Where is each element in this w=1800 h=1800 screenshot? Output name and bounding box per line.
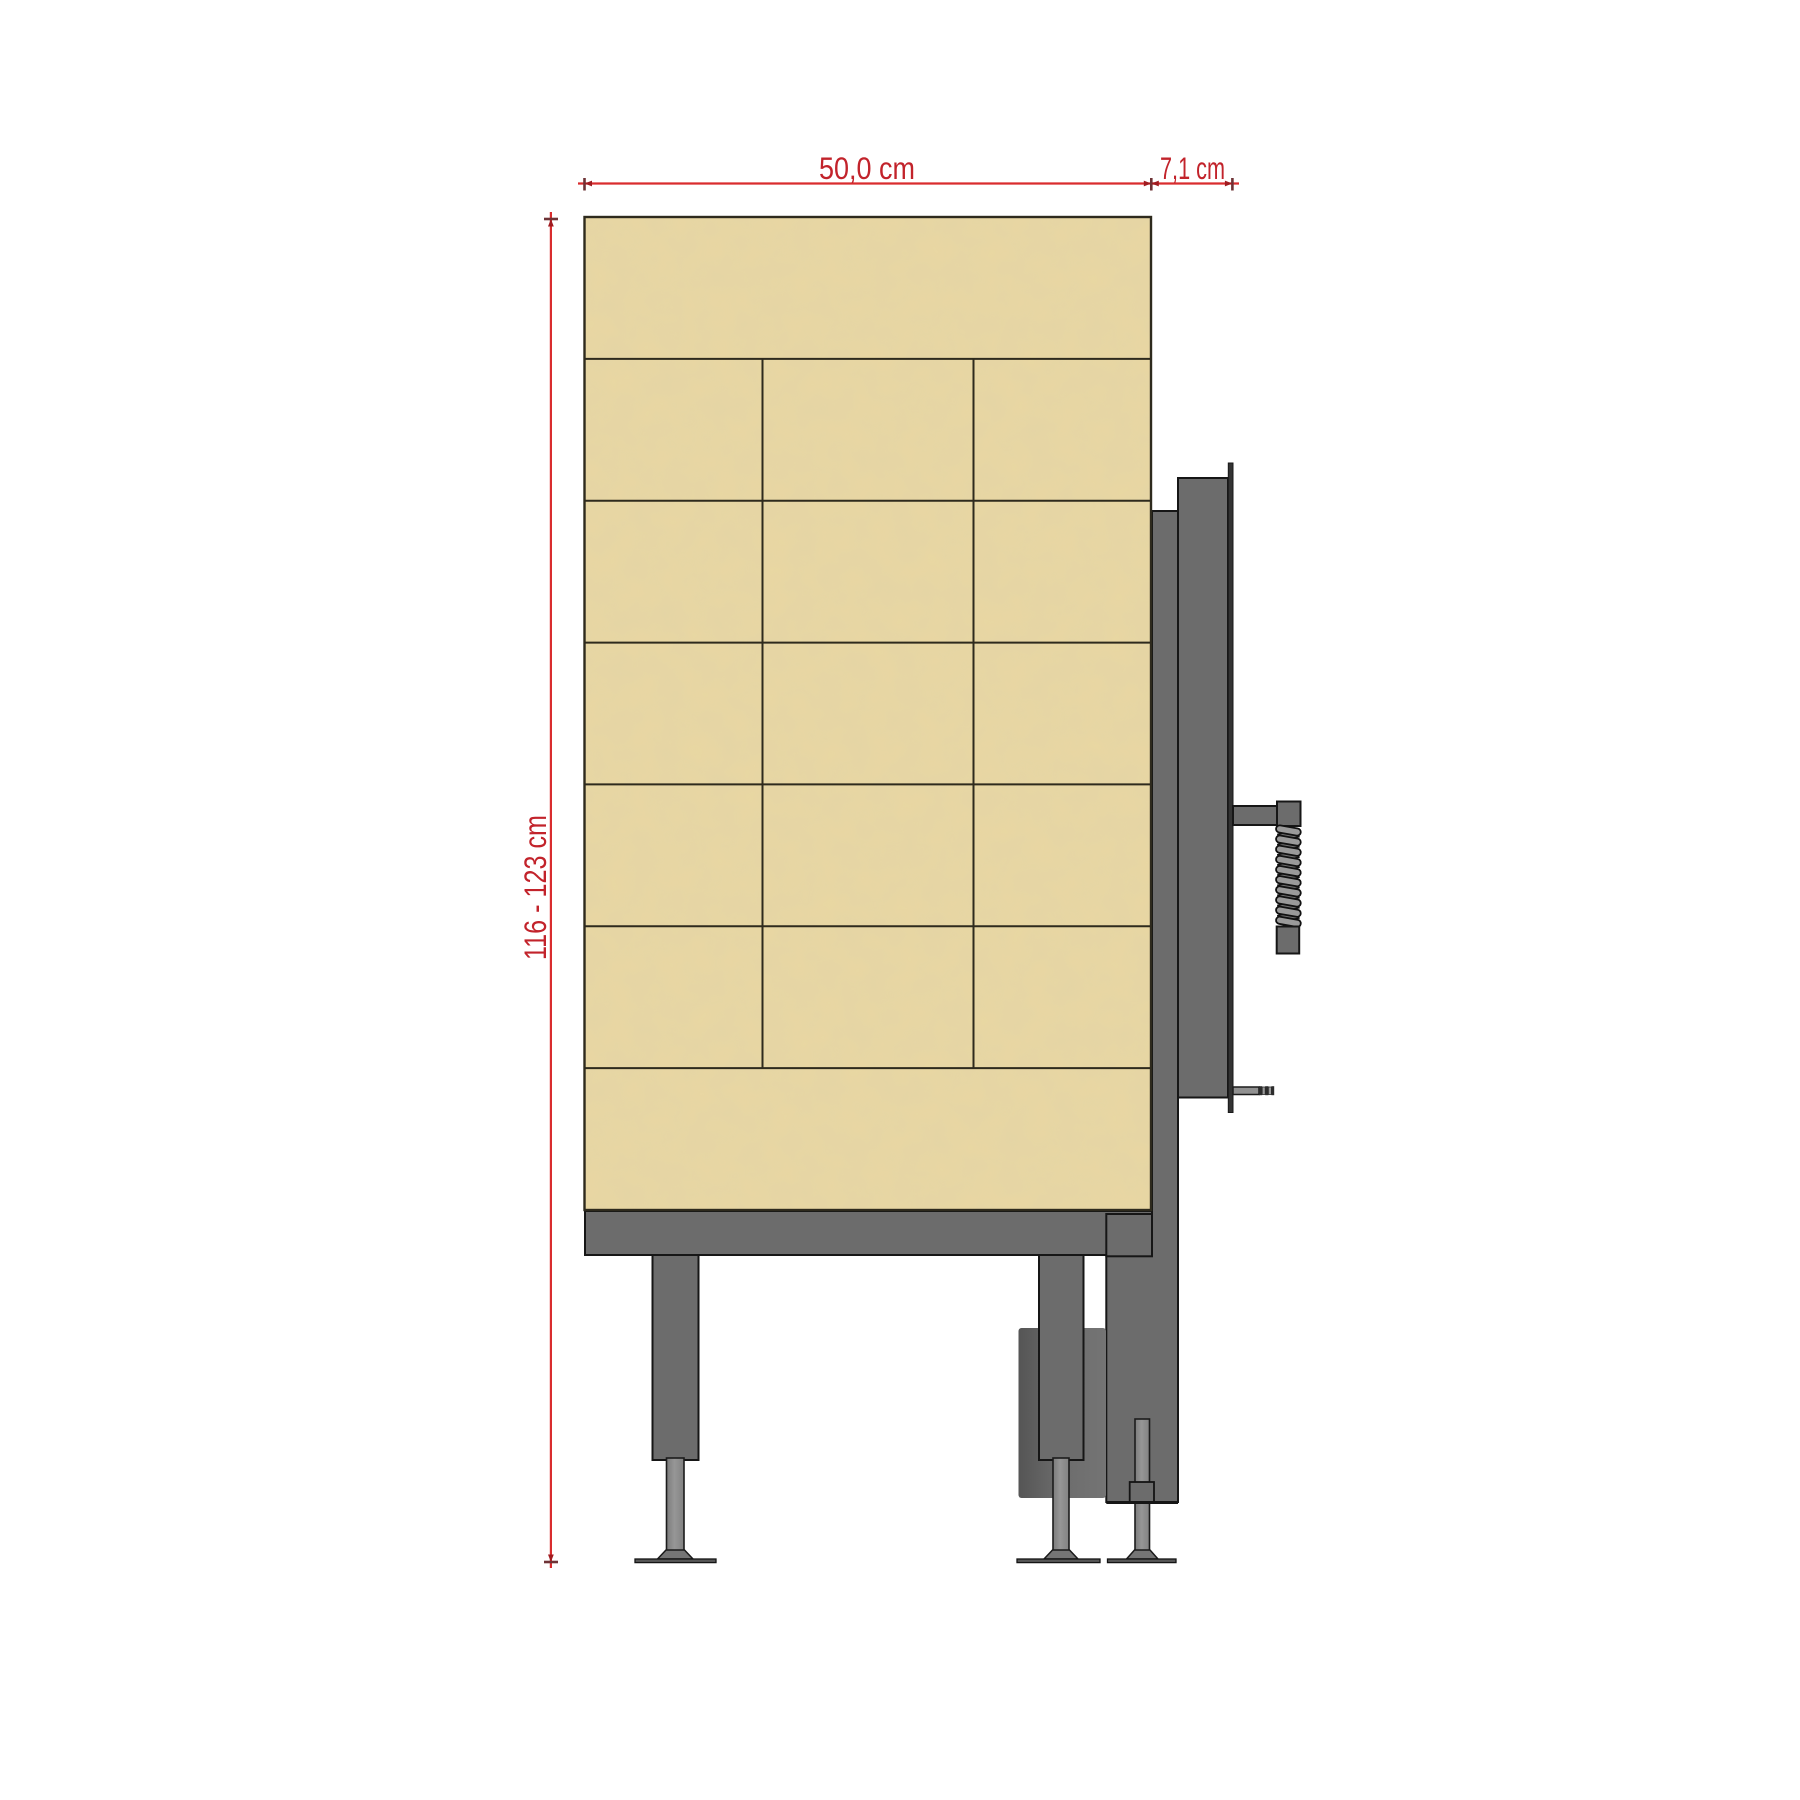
svg-text:116 - 123 cm: 116 - 123 cm xyxy=(517,815,553,960)
svg-text:50,0 cm: 50,0 cm xyxy=(819,150,915,186)
svg-text:7,1 cm: 7,1 cm xyxy=(1160,150,1225,186)
